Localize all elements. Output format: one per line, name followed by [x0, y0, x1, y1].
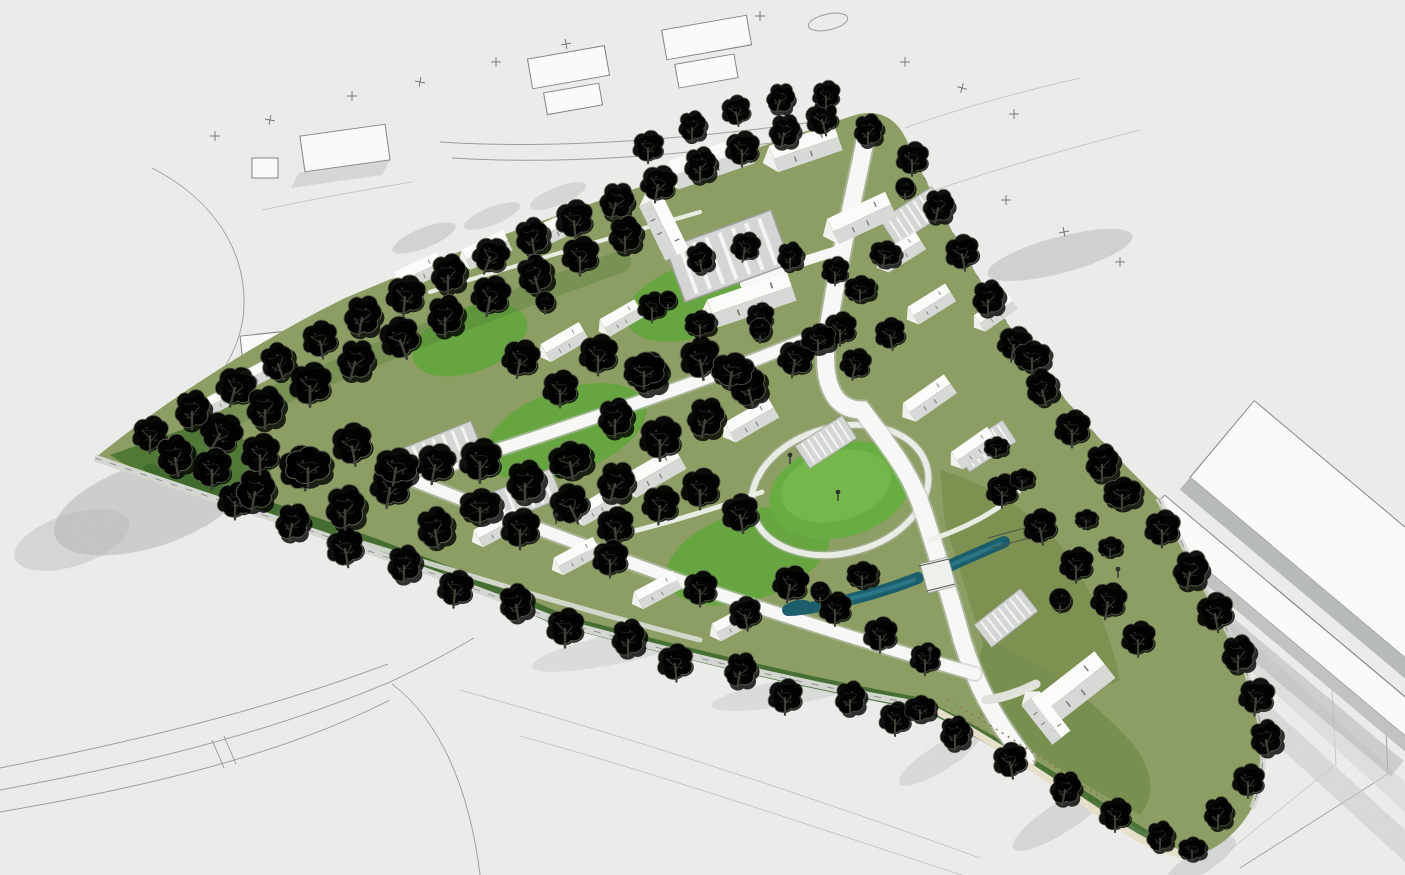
tree: [459, 488, 504, 527]
tree: [623, 352, 668, 391]
tree: [847, 561, 881, 590]
tree: [905, 695, 939, 724]
tree: [1075, 509, 1100, 530]
tree: [1014, 340, 1054, 374]
tree: [685, 310, 719, 339]
site-plan-illustration: Illustrative masterplan aerial sketch: [0, 0, 1405, 875]
tree: [984, 436, 1010, 459]
tree: [1103, 477, 1145, 513]
tree: [1098, 536, 1124, 559]
tree: [1010, 468, 1036, 491]
tree: [286, 446, 335, 488]
context-hut: [252, 158, 278, 178]
tree: [1178, 837, 1208, 863]
tree: [845, 275, 879, 304]
tree: [801, 323, 839, 356]
rendering-canvas: Illustrative masterplan aerial sketch: [0, 0, 1405, 875]
